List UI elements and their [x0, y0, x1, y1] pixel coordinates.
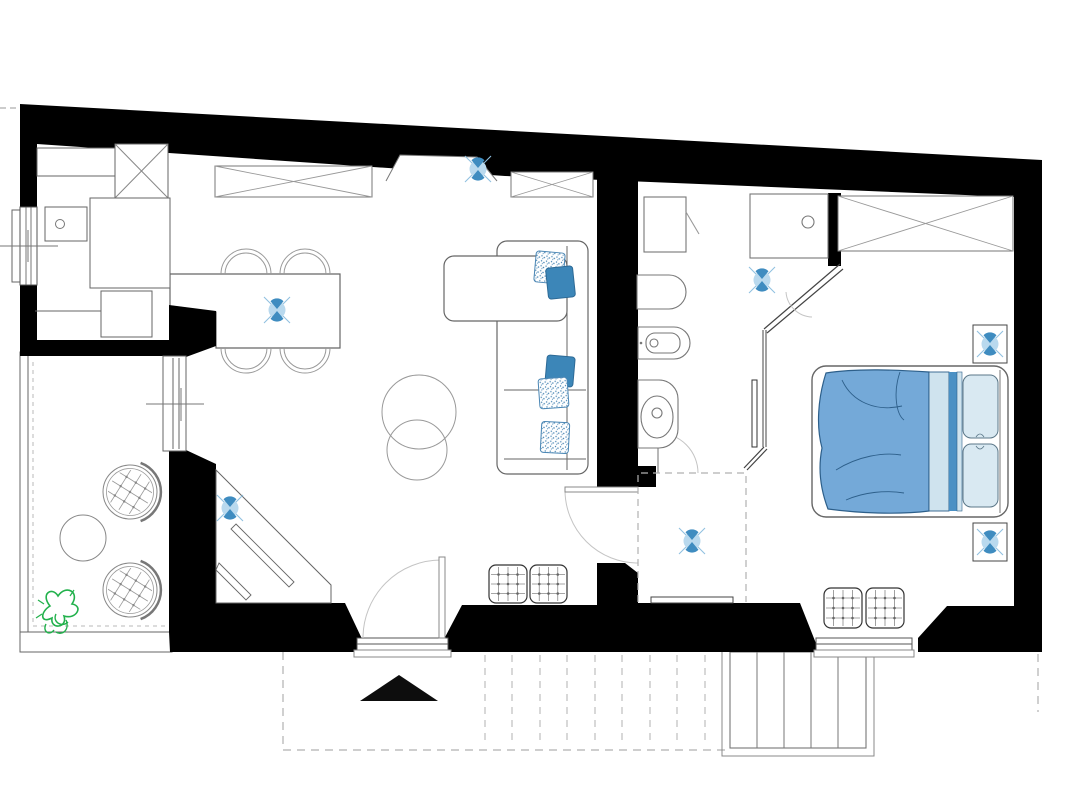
- pouf-dot: [893, 597, 896, 600]
- terrace-rail-left: [20, 352, 28, 632]
- pouf-dot: [842, 597, 845, 600]
- pouf-dot: [507, 592, 510, 595]
- pouf-dot: [547, 573, 550, 576]
- pouf-dot: [874, 597, 877, 600]
- entrance-threshold: [357, 644, 448, 650]
- entrance-arrow: [360, 675, 438, 701]
- pouf-dot: [556, 583, 559, 586]
- pouf-dot: [516, 583, 519, 586]
- bathroom: [637, 194, 828, 448]
- plant-leaves: [55, 614, 68, 624]
- pouf-dot: [516, 573, 519, 576]
- wall-living-bathroom: [597, 176, 638, 487]
- kitchen-counter: [37, 148, 115, 176]
- terrace-table: [60, 515, 106, 561]
- kitchen-sink-unit: [45, 207, 87, 241]
- wall-bathroom-south: [638, 466, 656, 487]
- hall-mirror: [752, 380, 757, 447]
- pouf-dot: [497, 573, 500, 576]
- toilet-dot: [640, 342, 643, 345]
- pouf-dot: [851, 597, 854, 600]
- pouf-dot: [893, 607, 896, 610]
- grid-pouf: [866, 588, 904, 628]
- pouf-dot: [842, 607, 845, 610]
- pouf-dot: [497, 592, 500, 595]
- outdoor-stairs: [722, 652, 874, 756]
- entrance-door-leaf: [439, 557, 445, 638]
- pouf-dot: [516, 592, 519, 595]
- wicker-chairs: [101, 463, 161, 619]
- entrance-threshold: [357, 638, 448, 644]
- bedroom-diagonal-wall: [764, 264, 840, 329]
- pouf-dot: [851, 607, 854, 610]
- terrace-furniture: [36, 463, 161, 633]
- deck-boundary-dashed: [283, 652, 725, 750]
- dining-chair: [284, 348, 326, 369]
- pouf-dot: [538, 583, 541, 586]
- bed-pillow: [963, 444, 998, 507]
- plant-leaves: [43, 590, 78, 626]
- double-bed: [812, 366, 1008, 517]
- cushion-patterned: [540, 421, 570, 453]
- shower-enclosure: [750, 194, 828, 258]
- wicker-chair: [101, 463, 161, 521]
- entrance-door-swing: [363, 560, 441, 638]
- potted-plant: [36, 590, 78, 633]
- bedroom-diagonal-wall: [747, 449, 767, 470]
- pouf-dot: [874, 607, 877, 610]
- wall-kitchen-terrace: [20, 340, 170, 356]
- bedroom-diagonal-wall: [744, 447, 764, 468]
- pouf-dot: [547, 583, 550, 586]
- ceiling-light-icon: [749, 267, 775, 293]
- bed-pillow: [963, 375, 998, 438]
- hallway-door-swing: [565, 490, 638, 563]
- pouf-dot: [884, 597, 887, 600]
- wall-right: [1014, 160, 1042, 652]
- bedroom-window-step: [814, 650, 914, 657]
- pouf-dot: [832, 617, 835, 620]
- bed-duvet: [819, 370, 929, 513]
- stairs-flight: [730, 652, 866, 748]
- pouf-dot: [507, 583, 510, 586]
- duvet-fold: [957, 372, 962, 511]
- pouf-dot: [893, 617, 896, 620]
- bedroom-window-threshold: [816, 638, 912, 644]
- dining-chair: [225, 253, 267, 274]
- plant-leaves: [36, 590, 74, 618]
- cushion-solid: [545, 266, 575, 300]
- dining-chair: [284, 253, 326, 274]
- hallway-door-leaf: [565, 487, 638, 492]
- bidet: [637, 275, 686, 309]
- pouf-dot: [538, 573, 541, 576]
- deck-boards: [485, 655, 705, 746]
- pouf-dot: [556, 592, 559, 595]
- coffee-table-small: [387, 420, 447, 480]
- pouf-dot: [884, 617, 887, 620]
- pouf-dot: [507, 573, 510, 576]
- grid-pouf: [824, 588, 862, 628]
- kitchen: [35, 144, 170, 337]
- pouf-dot: [556, 573, 559, 576]
- grid-pouf: [530, 565, 567, 603]
- grid-pouf: [489, 565, 527, 603]
- floor-plan-page: [0, 0, 1079, 798]
- bedroom: [812, 196, 1013, 561]
- pouf-dot: [842, 617, 845, 620]
- hallway-sill: [651, 597, 733, 603]
- pouf-dot: [547, 592, 550, 595]
- wicker-chair: [101, 561, 161, 619]
- pouf-dot: [851, 617, 854, 620]
- terrace-rail-bottom: [20, 632, 172, 652]
- wall-bottom-bedroom: [918, 606, 1042, 652]
- pouf-dot: [832, 607, 835, 610]
- ceiling-light-icon: [679, 528, 705, 554]
- pouf-dot: [884, 607, 887, 610]
- bedroom-diagonal-wall: [767, 269, 843, 333]
- wall-left-upper: [20, 144, 37, 207]
- kitchen-island: [90, 198, 170, 288]
- shower-unit: [644, 197, 686, 252]
- pouf-dot: [497, 583, 500, 586]
- duvet-fold: [929, 372, 949, 511]
- dining-chair: [225, 348, 267, 369]
- kitchen-stove: [101, 291, 152, 337]
- wall-west-upper: [169, 305, 216, 357]
- pouf-dot: [538, 592, 541, 595]
- pouf-dot: [874, 617, 877, 620]
- duvet-stripe: [949, 372, 957, 511]
- entrance-step: [354, 650, 451, 657]
- floor-plan-canvas: [0, 0, 1079, 798]
- bedroom-window-threshold: [816, 644, 912, 650]
- shower-door: [686, 212, 699, 234]
- living-room: [215, 166, 593, 603]
- cushion-patterned: [538, 377, 569, 409]
- pouf-dot: [832, 597, 835, 600]
